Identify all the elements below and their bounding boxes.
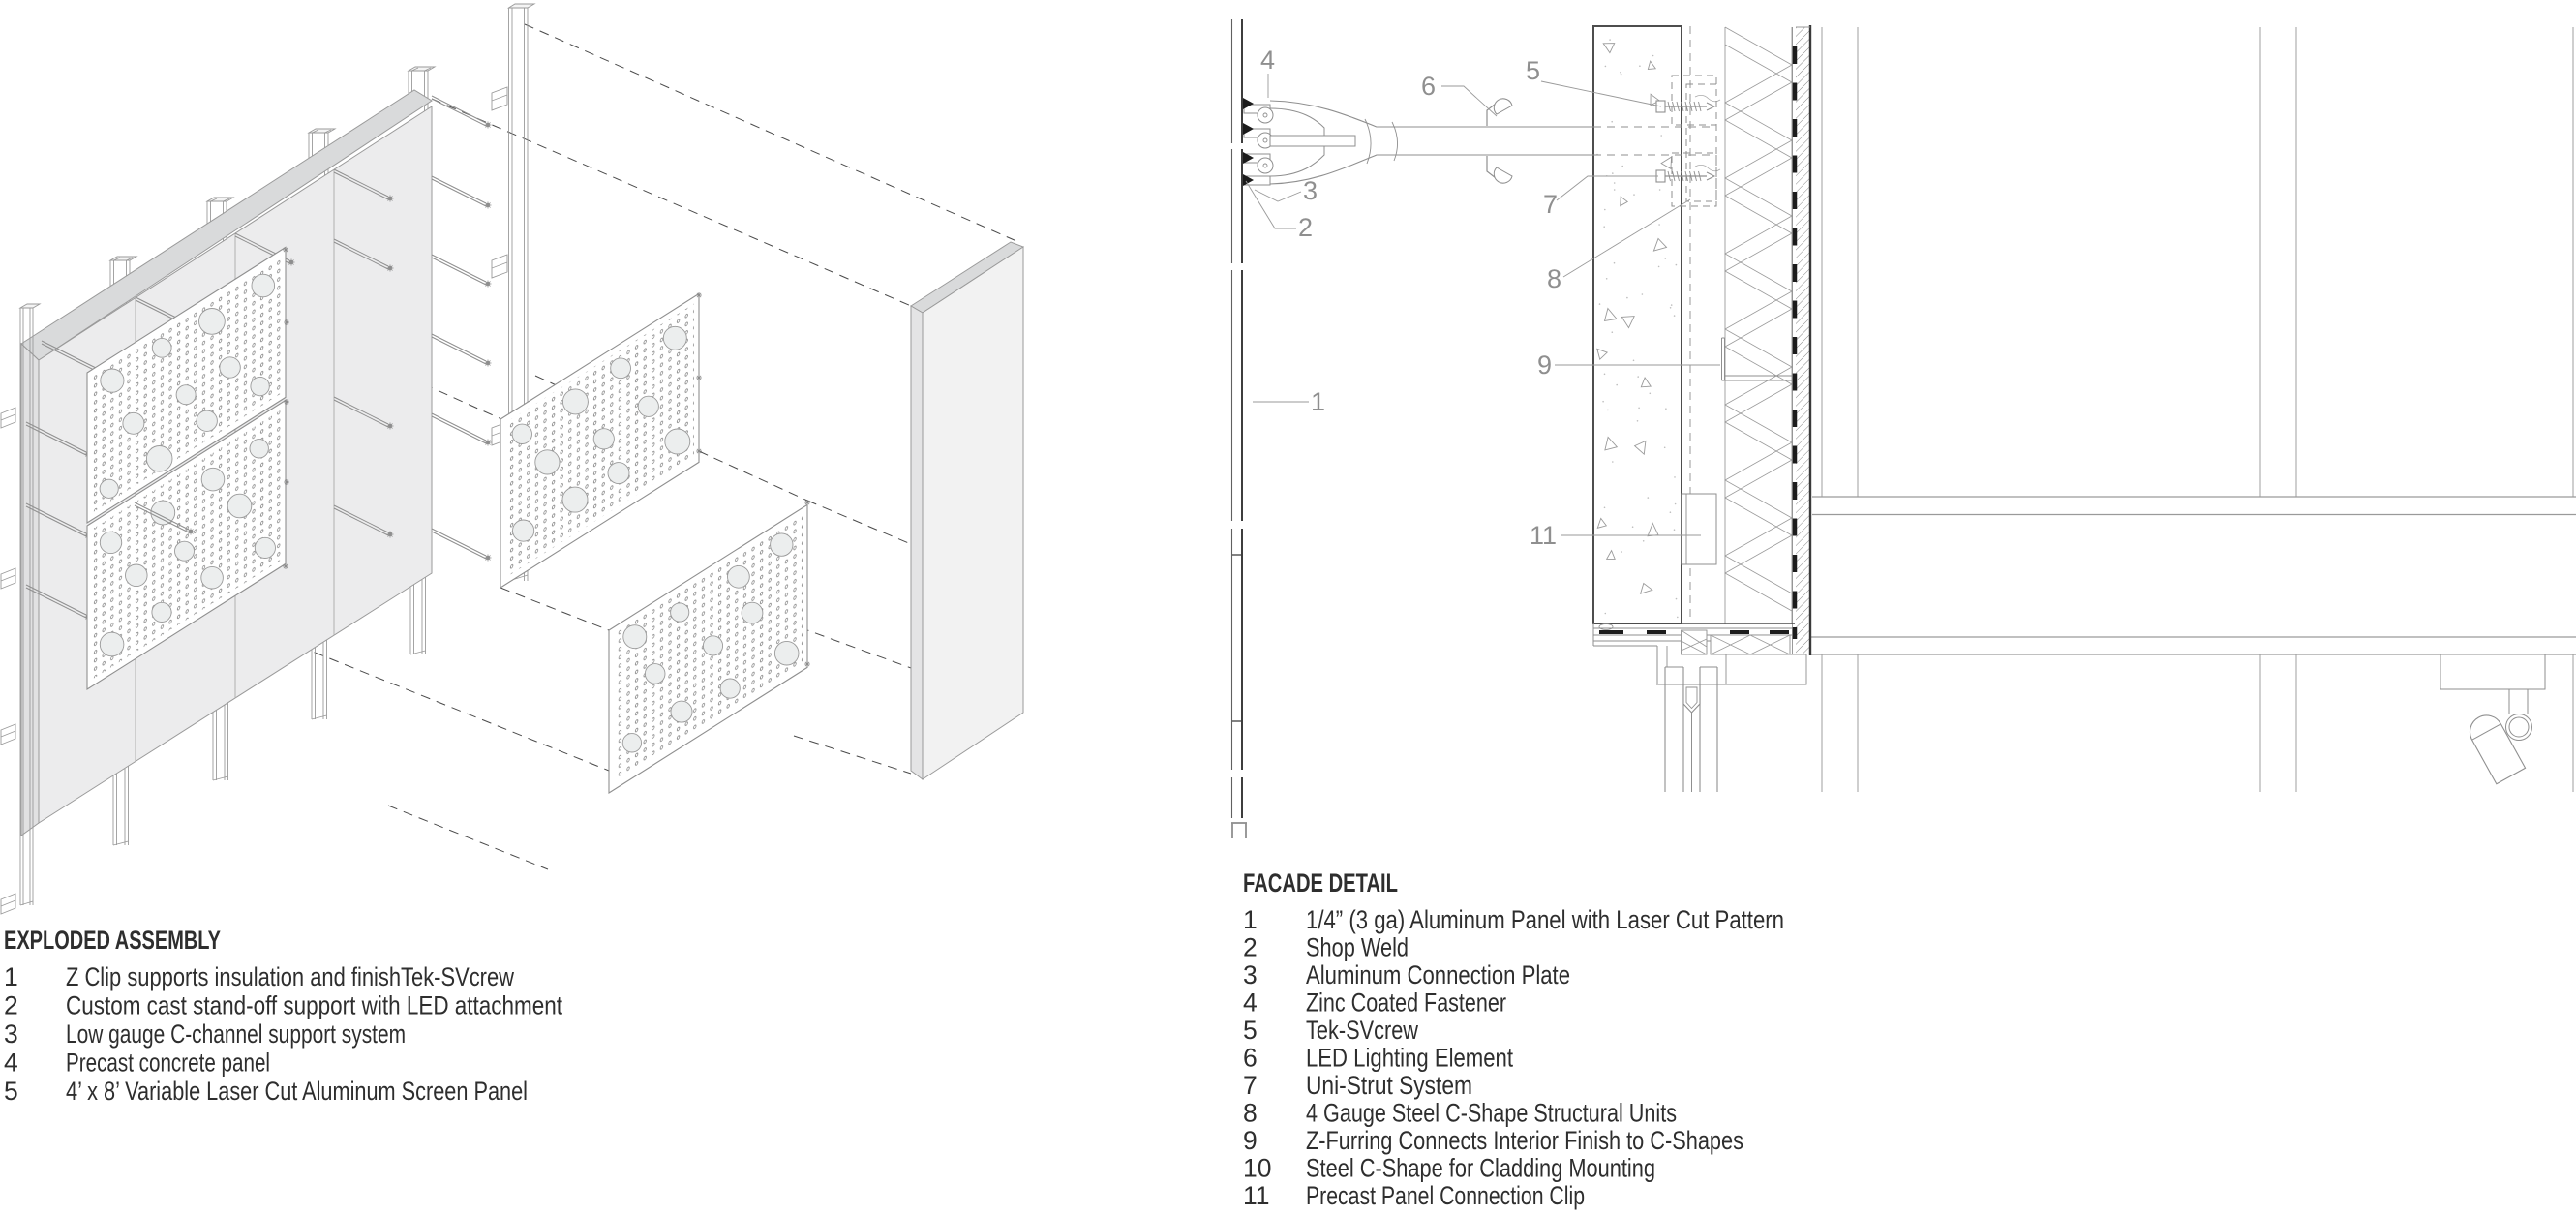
svg-text:1: 1	[1311, 387, 1325, 416]
svg-text:Z-Furring Connects Interior Fi: Z-Furring Connects Interior Finish to C-…	[1306, 1126, 1743, 1155]
svg-text:6: 6	[1243, 1044, 1258, 1073]
svg-text:5: 5	[1526, 56, 1540, 85]
svg-text:Shop Weld: Shop Weld	[1306, 933, 1409, 962]
svg-text:4’ x 8’ Variable Laser Cut Alu: 4’ x 8’ Variable Laser Cut Aluminum Scre…	[66, 1077, 528, 1106]
svg-text:8: 8	[1243, 1099, 1258, 1128]
svg-text:9: 9	[1243, 1126, 1258, 1155]
svg-text:4: 4	[1260, 46, 1275, 75]
svg-text:Uni-Strut System: Uni-Strut System	[1306, 1071, 1472, 1100]
svg-text:2: 2	[4, 991, 18, 1020]
svg-text:Steel C-Shape for Cladding Mou: Steel C-Shape for Cladding Mounting	[1306, 1154, 1655, 1183]
svg-text:6: 6	[1421, 72, 1436, 101]
svg-text:LED Lighting Element: LED Lighting Element	[1306, 1044, 1514, 1073]
svg-text:7: 7	[1543, 190, 1558, 219]
svg-text:EXPLODED ASSEMBLY: EXPLODED ASSEMBLY	[4, 926, 221, 955]
svg-text:2: 2	[1298, 213, 1313, 242]
svg-text:7: 7	[1243, 1071, 1258, 1100]
svg-text:3: 3	[1303, 176, 1318, 205]
svg-text:5: 5	[1243, 1016, 1258, 1045]
svg-text:Aluminum Connection Plate: Aluminum Connection Plate	[1306, 960, 1570, 989]
svg-text:10: 10	[1243, 1154, 1271, 1183]
svg-text:9: 9	[1537, 350, 1552, 380]
svg-text:3: 3	[1243, 960, 1258, 989]
svg-text:11: 11	[1243, 1181, 1270, 1210]
svg-text:2: 2	[1243, 933, 1258, 962]
svg-text:1: 1	[4, 962, 18, 991]
svg-text:11: 11	[1530, 521, 1557, 550]
svg-text:Custom cast stand-off support: Custom cast stand-off support with LED a…	[66, 991, 563, 1020]
svg-text:FACADE DETAIL: FACADE DETAIL	[1243, 868, 1398, 897]
svg-text:4 Gauge Steel C-Shape Structur: 4 Gauge Steel C-Shape Structural Units	[1306, 1099, 1677, 1128]
svg-text:4: 4	[1243, 988, 1258, 1018]
svg-text:Low gauge C-channel support sy: Low gauge C-channel support system	[66, 1019, 406, 1049]
svg-text:1: 1	[1243, 905, 1258, 934]
svg-text:Precast concrete panel: Precast concrete panel	[66, 1049, 270, 1078]
svg-text:1/4” (3 ga) Aluminum Panel wit: 1/4” (3 ga) Aluminum Panel with Laser Cu…	[1306, 905, 1784, 934]
svg-text:Tek-SVcrew: Tek-SVcrew	[1306, 1016, 1419, 1045]
svg-text:3: 3	[4, 1019, 18, 1049]
svg-text:Precast Panel Connection Clip: Precast Panel Connection Clip	[1306, 1181, 1585, 1210]
svg-text:8: 8	[1547, 264, 1561, 293]
svg-text:Zinc Coated Fastener: Zinc Coated Fastener	[1306, 988, 1506, 1018]
svg-text:5: 5	[4, 1077, 18, 1106]
svg-text:Z Clip supports insulation and: Z Clip supports insulation and finishTek…	[66, 962, 515, 991]
svg-text:4: 4	[4, 1049, 18, 1078]
